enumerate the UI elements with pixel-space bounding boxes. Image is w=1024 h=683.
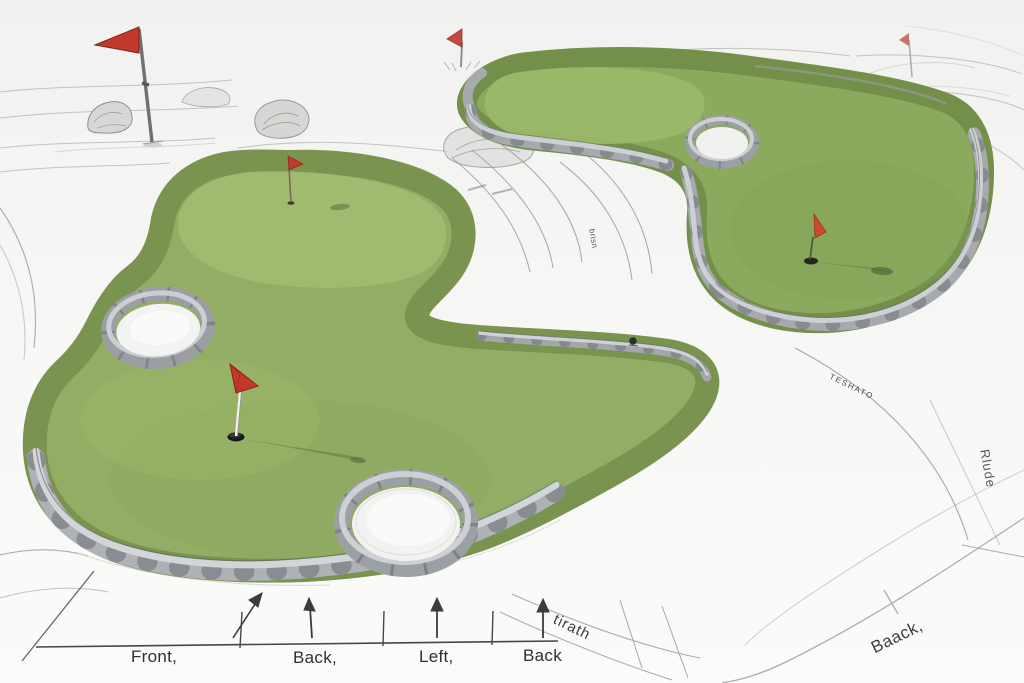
- right-green-light-lobe: [485, 67, 705, 144]
- bottom-hole-cutout: [342, 474, 470, 569]
- sketch-canvas: [0, 0, 1024, 683]
- axis-label-back-2: Back: [523, 646, 562, 666]
- axis-label-front: Front,: [131, 647, 177, 667]
- left-side-hole-cutout: [105, 288, 212, 367]
- putting-greens-sketch: Front, Back, Left, Back tirath Baack, Rl…: [0, 0, 1024, 683]
- axis-label-back-1: Back,: [293, 648, 337, 668]
- bush-icon: [255, 100, 309, 138]
- axis-label-left: Left,: [419, 647, 454, 667]
